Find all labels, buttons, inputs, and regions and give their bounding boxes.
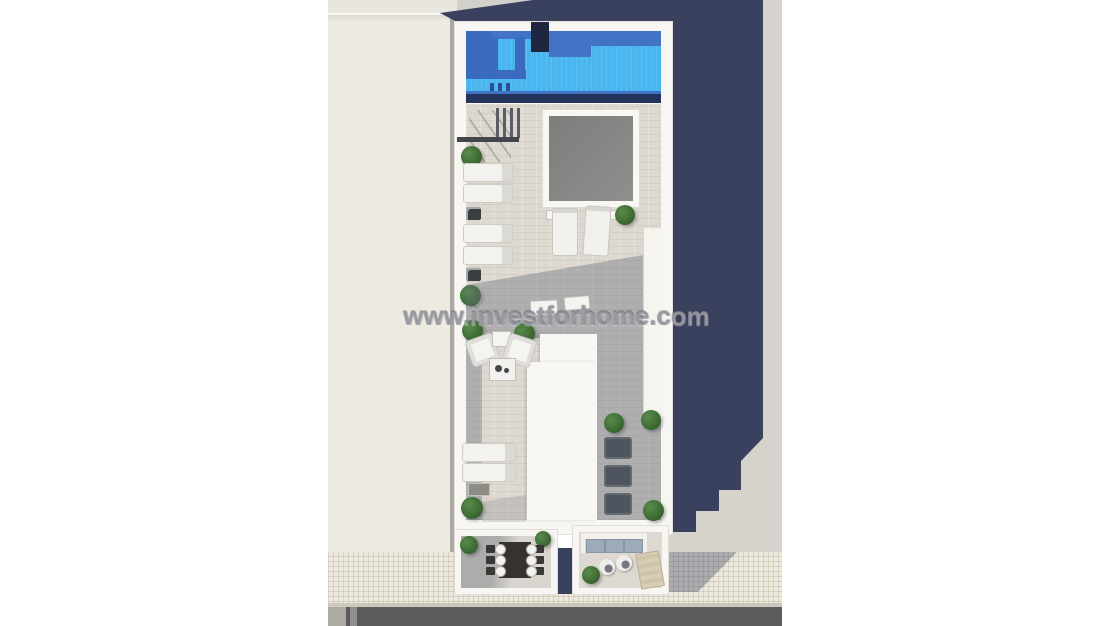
pool-bench (488, 70, 526, 79)
railing-bar (457, 137, 519, 142)
potted-plant (604, 413, 624, 433)
potted-plant (643, 500, 664, 521)
sun-lounger (463, 163, 513, 182)
railing-post (496, 108, 499, 138)
pool-shadow-band (549, 46, 591, 57)
road-marking (350, 607, 357, 626)
railing-post (503, 108, 506, 138)
side-table (468, 483, 490, 496)
render-canvas: www.investforhome.com (0, 0, 1110, 626)
place-setting (495, 544, 506, 555)
dining-terrace (455, 530, 557, 594)
main-rooftop (455, 22, 672, 534)
potted-plant (582, 566, 600, 584)
sun-lounger (463, 224, 513, 243)
place-setting (526, 566, 537, 577)
lounge-terrace (573, 526, 668, 594)
potted-plant (461, 497, 483, 519)
sun-lounger (463, 184, 513, 203)
sun-lounger-shaded (604, 437, 632, 459)
sun-lounger (463, 246, 513, 265)
table-decor (504, 368, 509, 373)
sofa-cushion (624, 539, 643, 553)
adjacent-roof-parapet (328, 0, 457, 14)
place-setting (526, 544, 537, 555)
sun-lounger (582, 205, 611, 257)
stair-core-roof (527, 362, 597, 520)
pool-edge-shadow (466, 94, 661, 103)
place-setting (526, 555, 537, 566)
pool-shadow-band (549, 31, 661, 46)
adjacent-building-roof (328, 13, 457, 555)
sofa-cushion (586, 539, 605, 553)
sun-lounger-shaded (604, 465, 632, 487)
sun-lounger (462, 443, 516, 462)
road (328, 607, 782, 626)
sofa-cushion (605, 539, 624, 553)
side-table (466, 207, 481, 220)
potted-plant (641, 410, 661, 430)
side-table (466, 268, 481, 281)
sun-lounger-shaded (604, 493, 632, 515)
railing-post (517, 108, 520, 138)
coffee-table (489, 358, 516, 381)
skylight (543, 110, 639, 207)
dining-chair (486, 545, 495, 553)
round-pouf (599, 559, 615, 575)
sofa-armrest (643, 533, 647, 553)
terrace-gap-shadow (557, 548, 573, 594)
road-marking (328, 607, 346, 626)
potted-plant (460, 536, 478, 554)
right-ground (663, 0, 782, 553)
potted-plant (615, 205, 635, 225)
railing-post (510, 108, 513, 138)
place-setting (495, 566, 506, 577)
round-pouf (616, 555, 632, 571)
watermark-text: www.investforhome.com (403, 301, 707, 332)
table-decor (495, 365, 502, 372)
stair-core-roof (540, 334, 597, 364)
skylight-glass (549, 116, 633, 201)
sun-lounger (462, 463, 516, 482)
sofa-armrest (581, 533, 585, 553)
dining-chair (486, 556, 495, 564)
dining-chair (486, 567, 495, 575)
place-setting (495, 555, 506, 566)
roof-access-chimney (531, 22, 549, 52)
sun-lounger (552, 208, 578, 256)
swimming-pool (466, 31, 661, 103)
